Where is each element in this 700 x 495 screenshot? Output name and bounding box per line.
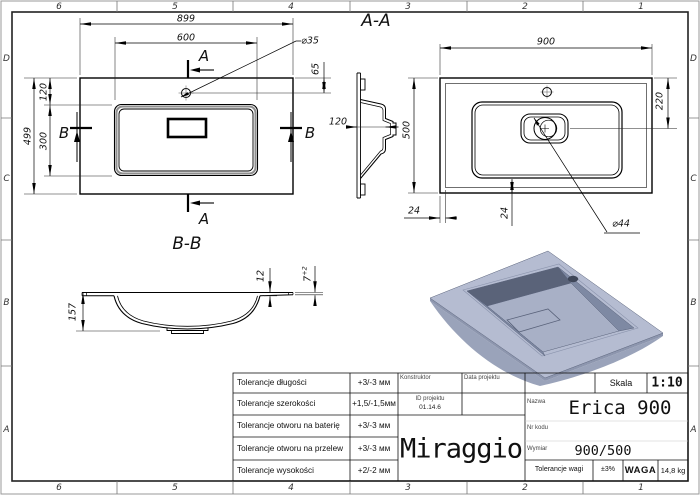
zone-row-label: C — [3, 174, 9, 184]
dim-overall-depth: 499 — [23, 127, 34, 145]
tolerance-label: Tolerancje otworu na baterię — [237, 415, 345, 437]
zone-col-label: 6 — [56, 2, 62, 12]
tolerance-value: +3/-3 мм — [350, 437, 398, 460]
zone-row-label: D — [3, 54, 10, 64]
dim-bb-edge-tolerance: +2 — [300, 266, 308, 276]
section-aa-profile — [346, 73, 399, 198]
nr-kodu-label: Nr kodu — [527, 425, 548, 431]
zone-row-label: D — [690, 54, 697, 64]
tolerancje-wagi-label: Tolerancje wagi — [525, 460, 593, 481]
zone-row-label: C — [690, 174, 696, 184]
drawing-sheet: 6 5 4 3 2 1 6 5 4 3 2 1 D C B A D C B A … — [0, 0, 700, 495]
dim-aa-drain-offset: 220 — [655, 92, 666, 110]
section-bb-title: B-B — [172, 234, 201, 254]
dim-basin-top-offset: 120 — [39, 82, 50, 100]
tolerance-value: +1,5/-1,5мм — [350, 393, 398, 415]
section-mark-a-top: A — [199, 47, 209, 65]
section-aa-view — [404, 44, 677, 233]
zone-row-label: A — [690, 425, 696, 435]
zone-col-label: 4 — [288, 483, 294, 493]
konstruktor-label: Konstruktor — [400, 375, 431, 381]
waga-value: 14,8 kg — [658, 460, 688, 481]
dim-bowl-depth: 120 — [329, 117, 347, 128]
section-mark-b-right: B — [305, 124, 315, 142]
dim-basin-depth: 300 — [39, 131, 50, 149]
plan-view — [24, 18, 331, 212]
zone-row-label: A — [3, 425, 9, 435]
dim-aa-drain-hole: ⌀44 — [612, 219, 630, 230]
tolerancje-wagi-value: ±3% — [593, 460, 623, 481]
dim-aa-width: 900 — [537, 37, 555, 48]
zone-col-label: 5 — [172, 483, 178, 493]
dim-bb-total-height: 157 — [68, 303, 79, 321]
tolerance-value: +3/-3 мм — [350, 373, 398, 393]
dim-overall-width: 899 — [177, 13, 195, 24]
dim-bb-edge-thickness: 7 — [303, 276, 314, 282]
zone-col-label: 2 — [522, 2, 528, 12]
section-mark-a-bottom: A — [199, 210, 209, 228]
dim-faucet-hole: ⌀35 — [301, 36, 319, 47]
tolerance-label: Tolerancje wysokości — [237, 460, 347, 481]
nazwa-label: Nazwa — [527, 399, 545, 405]
tolerance-value: +3/-3 мм — [350, 415, 398, 437]
tolerance-value: +2/-2 мм — [350, 460, 398, 481]
zone-col-label: 1 — [638, 483, 644, 493]
nazwa-value: Erica 900 — [569, 397, 672, 419]
zone-row-label: B — [690, 298, 696, 308]
wymiar-label: Wymiar — [527, 446, 547, 452]
dim-aa-depth: 500 — [402, 121, 413, 139]
zone-col-label: 6 — [56, 483, 62, 493]
id-projektu-value: 01.14.6 — [419, 404, 441, 411]
wymiar-value: 900/500 — [575, 443, 632, 459]
zone-col-label: 1 — [638, 2, 644, 12]
section-bb-view — [76, 266, 323, 334]
dim-basin-width: 600 — [177, 32, 195, 43]
zone-col-label: 3 — [405, 483, 411, 493]
zone-col-label: 2 — [522, 483, 528, 493]
tolerance-label: Tolerancje szerokości — [237, 393, 347, 415]
render-3d — [430, 251, 663, 386]
zone-col-label: 3 — [405, 2, 411, 12]
dim-bb-edge-thickness-group: 7+2 — [300, 266, 313, 282]
dim-aa-bottom-margin: 24 — [500, 207, 511, 219]
skala-label: Skala — [595, 373, 647, 393]
tolerance-label: Tolerancje długości — [237, 373, 347, 393]
data-projektu-label: Data projektu — [464, 375, 500, 381]
dim-bb-rim-thickness: 12 — [256, 270, 267, 282]
id-projektu-label: ID projektu — [415, 396, 444, 402]
zone-row-label: B — [3, 298, 9, 308]
dim-aa-side-margin: 24 — [408, 206, 420, 217]
dim-faucet-offset: 65 — [311, 63, 322, 75]
section-mark-b-left: B — [59, 124, 69, 142]
tolerance-label: Tolerancje otworu na przelew — [237, 437, 345, 460]
section-aa-title: A-A — [361, 11, 390, 31]
zone-col-label: 5 — [172, 2, 178, 12]
brand-logo: Miraggio — [400, 434, 522, 465]
zone-col-label: 4 — [288, 2, 294, 12]
skala-value: 1:10 — [651, 376, 682, 391]
waga-label: WAGA — [623, 460, 658, 481]
